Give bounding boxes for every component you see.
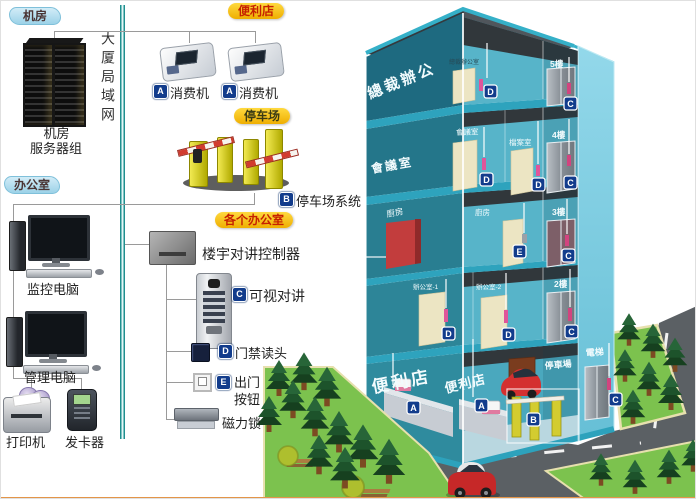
server-rack-icon — [53, 43, 86, 127]
printer-label: 打印机 — [6, 432, 45, 451]
lan-label: 大厦局域网 — [98, 31, 118, 171]
badge-c: C — [232, 287, 247, 302]
floor3-tag: 3樓 — [552, 207, 566, 217]
wire — [166, 351, 191, 352]
svg-text:D: D — [505, 330, 512, 340]
magnetic-lock-label: 磁力锁 — [222, 413, 261, 432]
badge-c: C — [564, 176, 577, 189]
svg-text:D: D — [445, 329, 452, 339]
badge-d: D — [480, 173, 493, 186]
lan-trunk-line — [120, 5, 125, 439]
exit-button-icon — [193, 373, 212, 392]
svg-text:E: E — [516, 247, 522, 257]
badge-d: D — [532, 178, 545, 191]
svg-text:D: D — [483, 175, 490, 185]
video-intercom-icon — [196, 273, 232, 349]
intercom-controller-icon — [149, 231, 196, 265]
badge-a: A — [407, 401, 420, 414]
card-writer-label: 发卡器 — [65, 432, 104, 451]
floor5-room-label: 總裁辦公室 — [449, 58, 479, 66]
pos-machine-label: 消费机 — [170, 83, 209, 102]
badge-c: C — [609, 393, 622, 406]
svg-text:A: A — [478, 401, 485, 411]
building: 總裁辦公 總裁辦公室 5樓 會議室 會議室 檔案室 4樓 廚房 廚房 3樓 辦公… — [355, 9, 622, 466]
floor3-room-label: 廚房 — [475, 207, 490, 217]
svg-text:C: C — [568, 327, 575, 337]
badge-b: B — [279, 192, 294, 207]
badge-d: D — [502, 328, 515, 341]
mouse-icon — [92, 365, 101, 371]
tab-store: 便利店 — [228, 3, 284, 19]
floor4-tag: 4樓 — [552, 130, 566, 140]
server-rack-icon — [23, 43, 54, 127]
badge-c: C — [562, 249, 575, 262]
mouse-icon — [95, 269, 104, 275]
floor2-room2-label: 辦公室-2 — [476, 282, 502, 291]
wire — [13, 204, 255, 205]
magnetic-lock-icon — [174, 408, 219, 421]
badge-a: A — [475, 399, 488, 412]
intercom-controller-label: 楼宇对讲控制器 — [202, 244, 300, 264]
wire — [81, 378, 82, 389]
monitor-icon — [28, 215, 90, 261]
badge-d: D — [218, 344, 233, 359]
admin-pc-label: 管理电脑 — [24, 367, 76, 386]
floor2-room1-label: 辦公室-1 — [413, 282, 439, 291]
badge-d: D — [484, 85, 497, 98]
desktop-tower-icon — [9, 221, 26, 271]
monitor-icon — [25, 311, 87, 357]
wire — [125, 244, 151, 245]
system-diagram: 總裁辦公 總裁辦公室 5樓 會議室 會議室 檔案室 4樓 廚房 廚房 3樓 辦公… — [0, 0, 696, 499]
badge-d: D — [442, 327, 455, 340]
svg-text:C: C — [567, 178, 574, 188]
server-caption-line2: 服务器组 — [21, 138, 91, 157]
monitor-pc-label: 监控电脑 — [27, 279, 79, 298]
badge-e: E — [216, 375, 231, 390]
printer-icon — [3, 397, 51, 433]
svg-text:B: B — [530, 415, 537, 425]
elevator-label: 電梯 — [585, 346, 604, 358]
parking-system-label: 停车场系统 — [296, 191, 361, 210]
svg-text:C: C — [567, 99, 574, 109]
card-writer-icon — [67, 389, 97, 431]
wire — [166, 263, 167, 419]
tab-offices: 各个办公室 — [215, 212, 293, 228]
svg-text:D: D — [487, 87, 494, 97]
pos-machine-icon — [227, 42, 285, 82]
svg-text:C: C — [612, 395, 619, 405]
tab-server-room: 机房 — [9, 7, 61, 25]
floor4-room1-label: 會議室 — [456, 126, 479, 137]
tab-parking: 停车场 — [234, 108, 290, 124]
floor2-tag: 2樓 — [554, 279, 568, 289]
badge-c: C — [564, 97, 577, 110]
pos-machine-label: 消费机 — [239, 83, 278, 102]
wire — [255, 31, 256, 43]
desktop-tower-icon — [6, 317, 23, 367]
wire — [166, 382, 193, 383]
wire — [189, 31, 190, 43]
badge-a: A — [222, 84, 237, 99]
door-reader-icon — [191, 343, 210, 362]
video-intercom-label: 可视对讲 — [249, 286, 305, 306]
badge-b: B — [527, 413, 540, 426]
badge-a: A — [153, 84, 168, 99]
pos-machine-icon — [159, 42, 217, 82]
svg-text:C: C — [565, 251, 572, 261]
badge-c: C — [565, 325, 578, 338]
floor5-tag: 5樓 — [550, 59, 564, 69]
exit-button-label-line2: 按钮 — [234, 389, 260, 408]
parking-barrier-icon — [181, 129, 293, 193]
svg-text:D: D — [535, 180, 542, 190]
badge-e: E — [513, 245, 526, 258]
keyboard-icon — [26, 269, 92, 278]
wire — [54, 31, 256, 32]
door-reader-label: 门禁读头 — [235, 343, 287, 362]
wire — [166, 299, 196, 300]
svg-text:A: A — [410, 403, 417, 413]
wire — [254, 193, 255, 205]
floor4-room2-label: 檔案室 — [509, 137, 532, 147]
tab-office: 办公室 — [4, 176, 60, 194]
